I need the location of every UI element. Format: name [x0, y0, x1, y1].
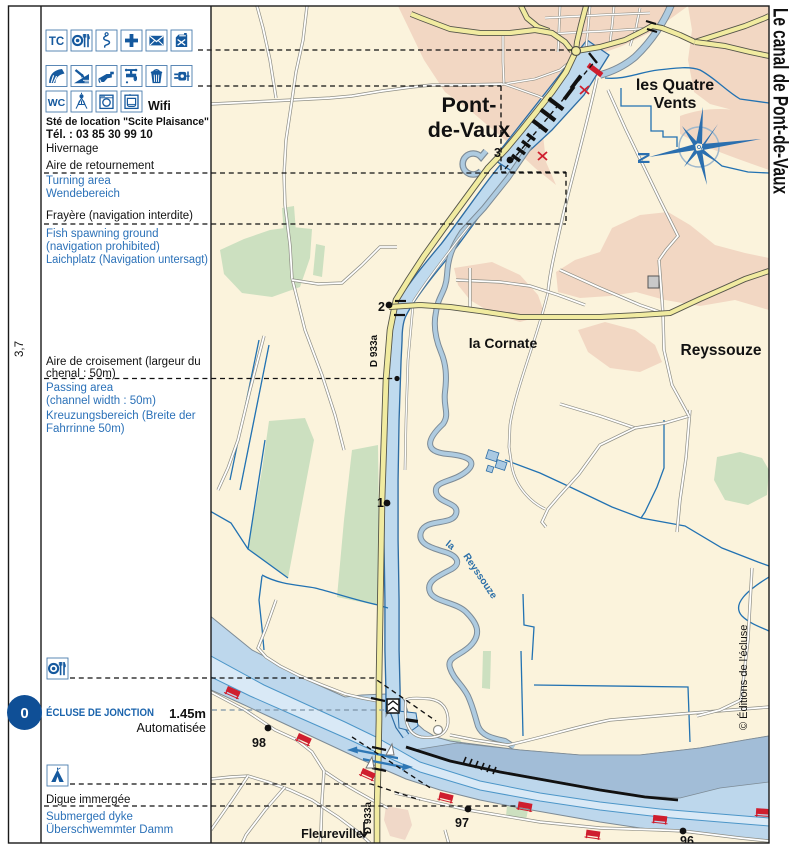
svg-text:3: 3 — [494, 146, 501, 160]
svg-text:0: 0 — [20, 705, 28, 722]
svg-text:97: 97 — [455, 816, 469, 830]
svg-text:1: 1 — [377, 496, 384, 510]
svg-text:Digue immergée: Digue immergée — [46, 794, 130, 806]
svg-text:Reyssouze: Reyssouze — [681, 342, 762, 359]
svg-text:D 933a: D 933a — [369, 334, 380, 367]
svg-text:(navigation prohibited): (navigation prohibited) — [46, 241, 160, 253]
svg-text:Wendebereich: Wendebereich — [46, 188, 120, 200]
svg-text:98: 98 — [252, 736, 266, 750]
svg-text:Aire de retournement: Aire de retournement — [46, 160, 155, 172]
svg-text:3,7: 3,7 — [14, 341, 26, 357]
svg-text:Vents: Vents — [654, 95, 697, 112]
svg-text:Le canal de Pont-de-Vaux: Le canal de Pont-de-Vaux — [769, 8, 792, 194]
svg-text:Fleureville: Fleureville — [301, 827, 363, 841]
svg-text:de-Vaux: de-Vaux — [428, 118, 510, 142]
svg-text:96: 96 — [680, 834, 694, 848]
svg-text:(channel width : 50m): (channel width : 50m) — [46, 395, 156, 407]
svg-text:chenal : 50m): chenal : 50m) — [46, 368, 116, 380]
svg-text:Hivernage: Hivernage — [46, 143, 98, 155]
svg-text:la Cornate: la Cornate — [469, 335, 538, 351]
svg-text:Passing area: Passing area — [46, 382, 114, 394]
svg-text:N: N — [634, 152, 653, 164]
svg-text:les Quatre: les Quatre — [636, 77, 714, 94]
svg-text:Submerged dyke: Submerged dyke — [46, 811, 133, 823]
svg-text:1.45m: 1.45m — [169, 706, 206, 721]
svg-text:Kreuzungsbereich (Breite der: Kreuzungsbereich (Breite der — [46, 410, 196, 422]
svg-text:Fish spawning ground: Fish spawning ground — [46, 228, 159, 240]
svg-text:Laichplatz (Navigation untersa: Laichplatz (Navigation untersagt) — [46, 254, 208, 266]
svg-text:TC: TC — [49, 36, 64, 48]
svg-text:Sté de location "Scite Plaisan: Sté de location "Scite Plaisance" — [46, 116, 209, 128]
svg-text:Überschwemmter Damm: Überschwemmter Damm — [46, 824, 173, 836]
svg-text:WC: WC — [48, 97, 66, 109]
svg-text:Aire de croisement (largeur du: Aire de croisement (largeur du — [46, 356, 201, 368]
svg-text:Wifi: Wifi — [148, 99, 171, 113]
svg-text:Fahrrinne 50m): Fahrrinne 50m) — [46, 423, 125, 435]
svg-text:Tél. : 03 85 30 99 10: Tél. : 03 85 30 99 10 — [46, 129, 153, 141]
svg-text:Frayère (navigation interdite): Frayère (navigation interdite) — [46, 210, 193, 222]
svg-text:Pont-: Pont- — [442, 93, 497, 117]
svg-text:Turning area: Turning area — [46, 175, 111, 187]
svg-text:© Éditions de l’écluse: © Éditions de l’écluse — [737, 625, 750, 730]
svg-text:ÉCLUSE DE JONCTION: ÉCLUSE DE JONCTION — [46, 706, 154, 719]
svg-text:2: 2 — [378, 300, 385, 314]
svg-text:Automatisée: Automatisée — [137, 721, 207, 735]
